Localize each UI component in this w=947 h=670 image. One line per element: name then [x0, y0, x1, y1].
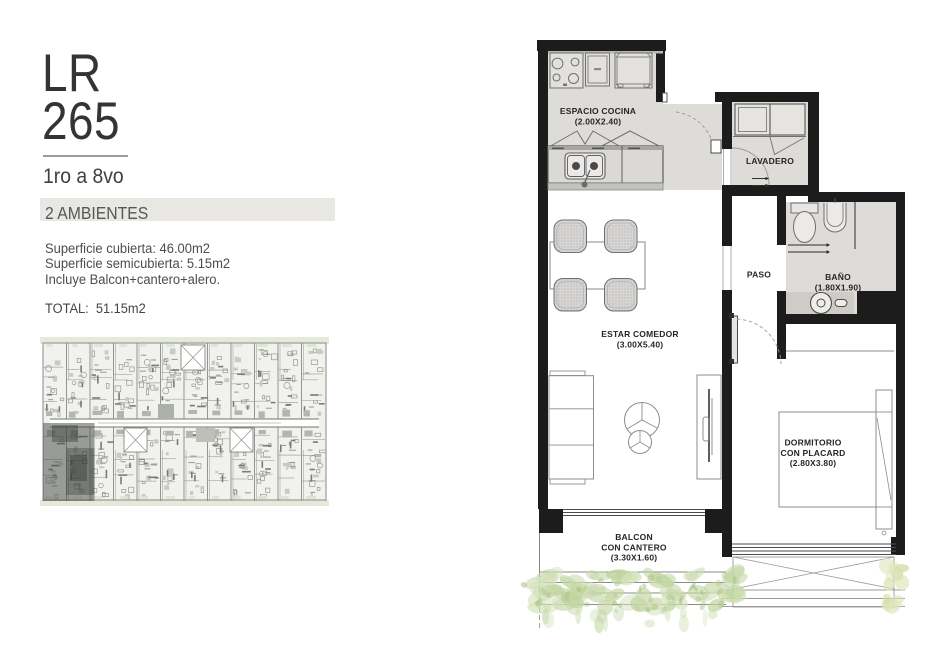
svg-text:LAVADERO: LAVADERO [746, 156, 794, 166]
svg-text:ESPACIO COCINA: ESPACIO COCINA [560, 106, 636, 116]
svg-text:(1.80X1.90): (1.80X1.90) [815, 282, 862, 292]
svg-text:CON CANTERO: CON CANTERO [601, 542, 667, 552]
svg-text:(3.00X5.40): (3.00X5.40) [617, 339, 664, 349]
svg-text:CON PLACARD: CON PLACARD [780, 448, 845, 458]
svg-text:DORMITORIO: DORMITORIO [784, 438, 841, 448]
svg-text:BAÑO: BAÑO [825, 272, 851, 282]
svg-text:(2.80X3.80): (2.80X3.80) [790, 458, 837, 468]
svg-text:ESTAR COMEDOR: ESTAR COMEDOR [601, 329, 679, 339]
svg-text:PASO: PASO [747, 270, 771, 280]
svg-text:(3.30X1.60): (3.30X1.60) [611, 553, 658, 563]
svg-text:BALCON: BALCON [615, 532, 653, 542]
svg-text:(2.00X2.40): (2.00X2.40) [575, 116, 622, 126]
